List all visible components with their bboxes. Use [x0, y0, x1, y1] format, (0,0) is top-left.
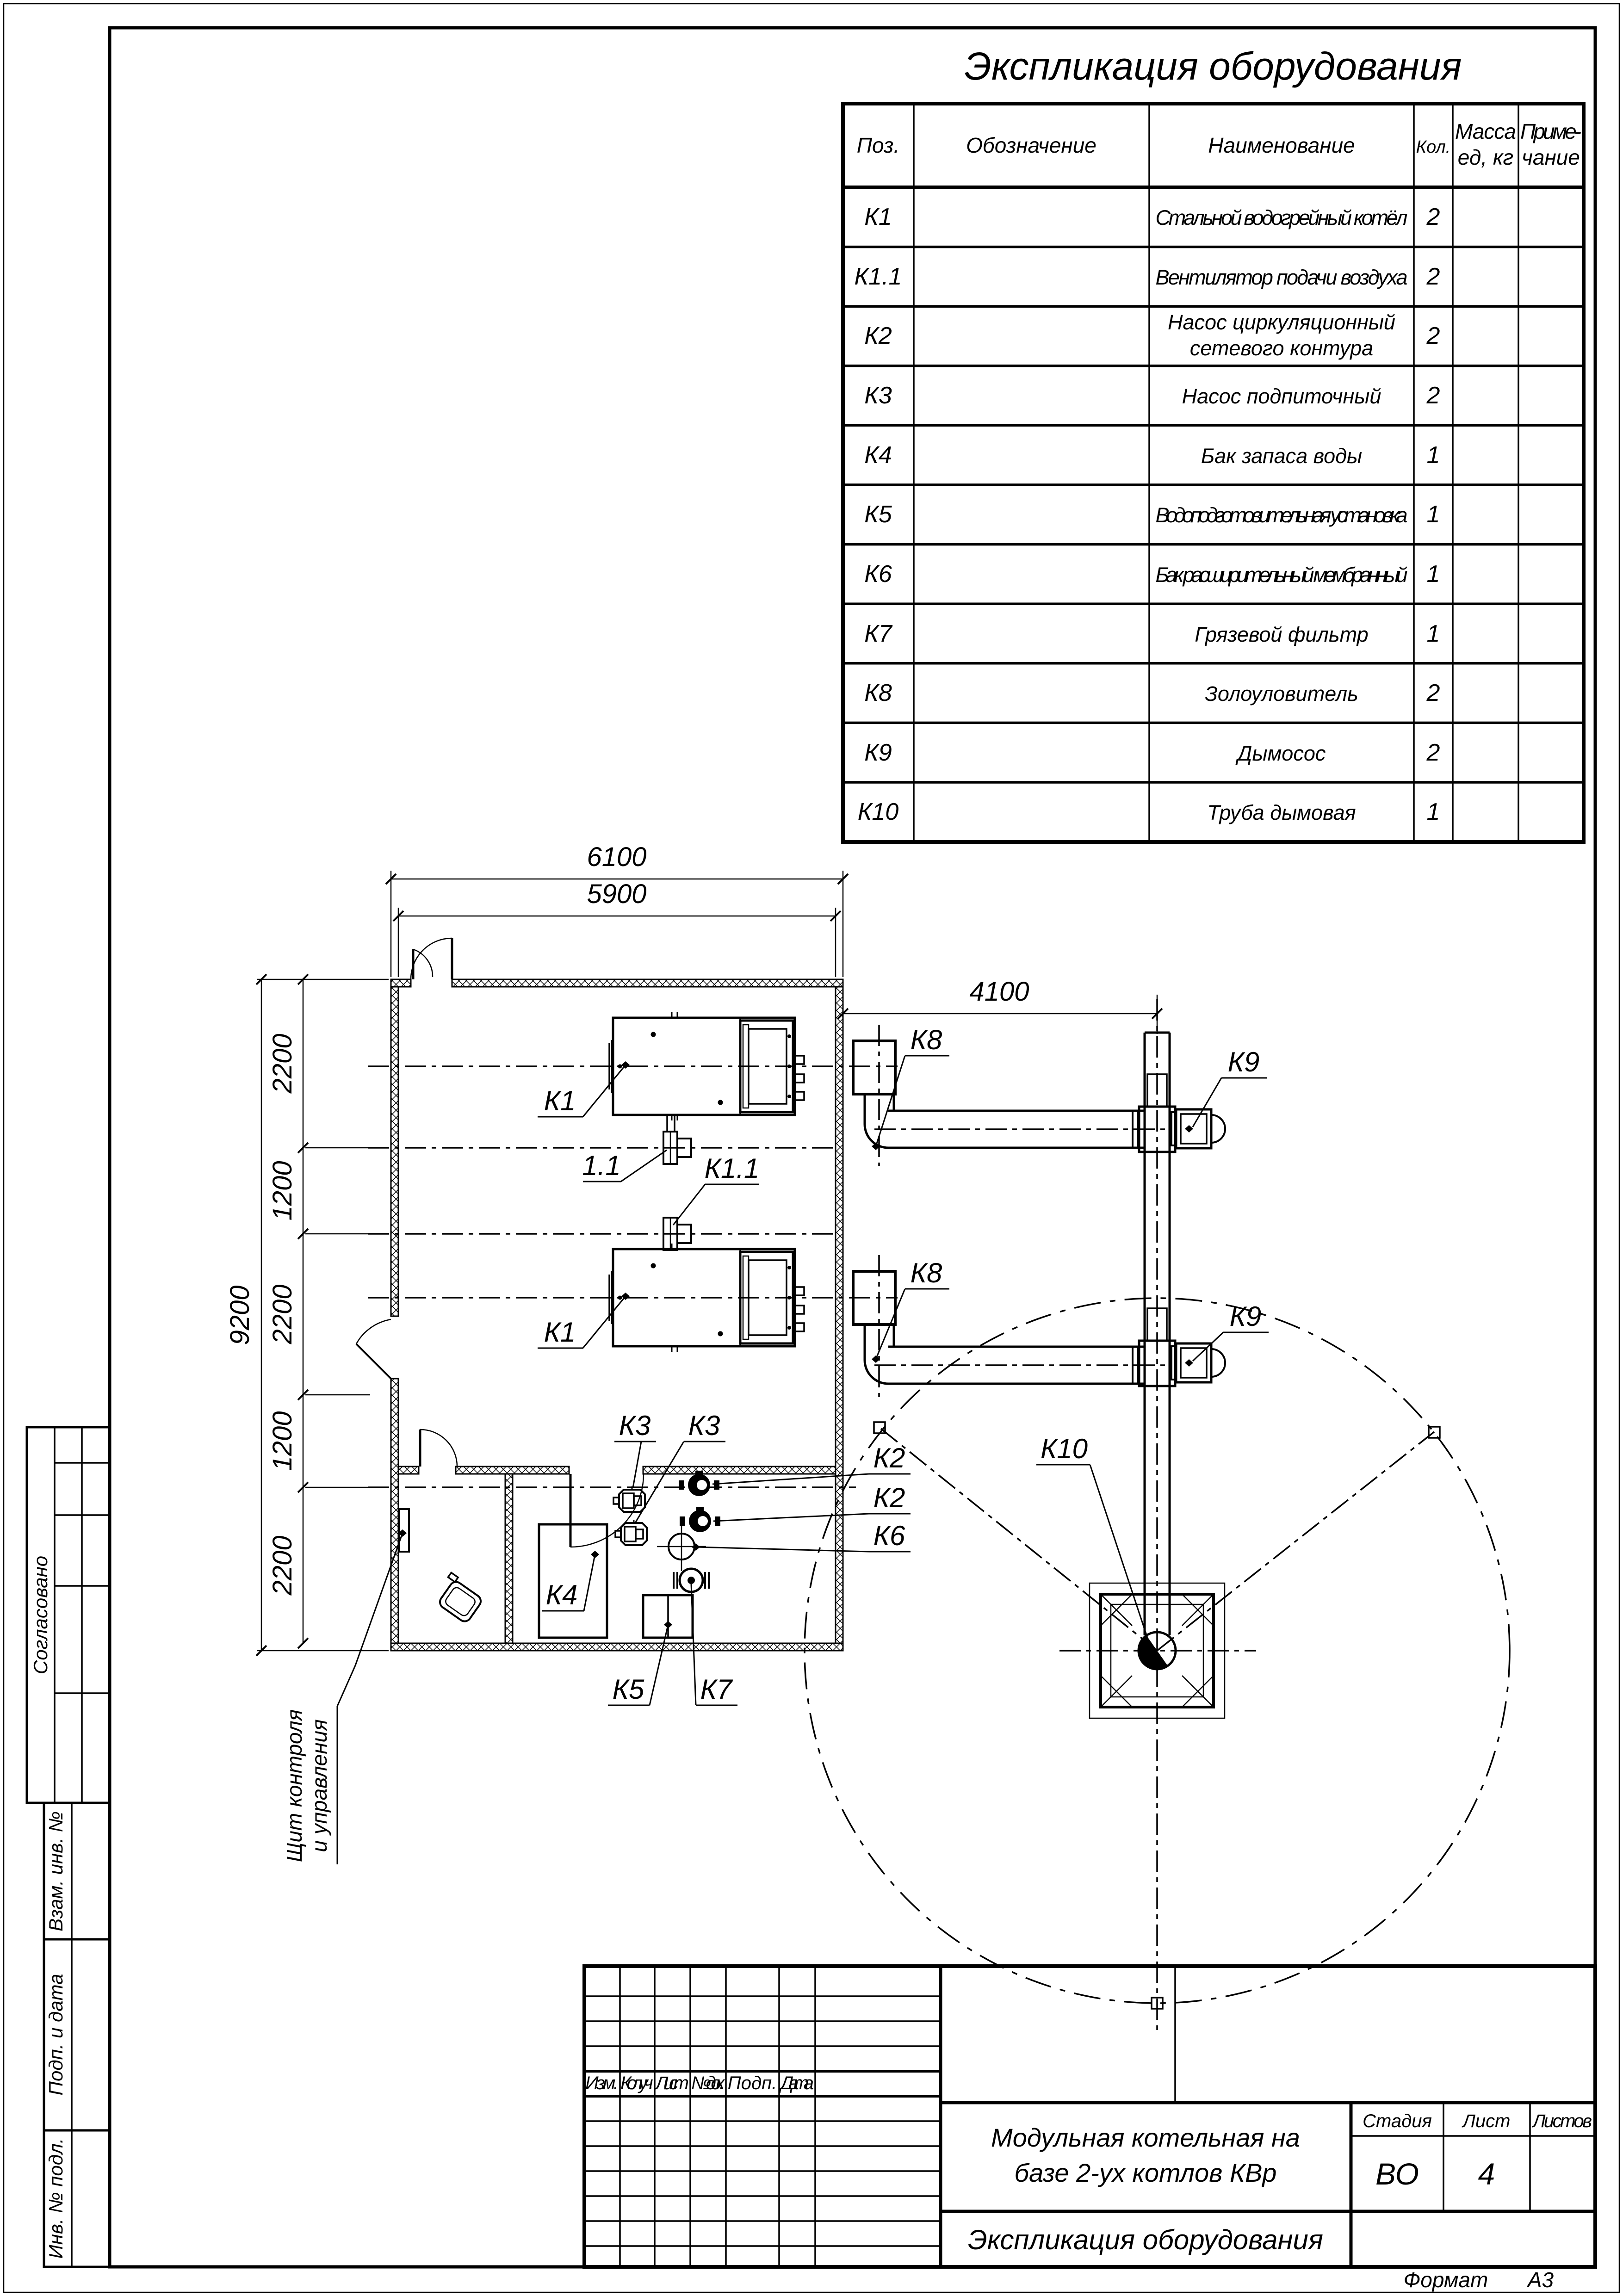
rev-data: Дата	[779, 2073, 814, 2093]
svg-text:К8: К8	[911, 1024, 942, 1055]
building-walls	[391, 979, 843, 1651]
doc-title: Экспликация оборудования	[968, 2224, 1323, 2255]
svg-text:К9: К9	[1230, 1301, 1262, 1332]
dim-seg3: 2200	[267, 1284, 297, 1344]
svg-text:К8: К8	[911, 1257, 942, 1288]
rev-ndok: №док.	[691, 2073, 725, 2093]
stamp-inv-label: Инв. № подл.	[45, 2138, 67, 2259]
stamp-vzam-label: Взам. инв. №	[45, 1811, 67, 1931]
label-k1-bottom: К1	[538, 1293, 630, 1348]
svg-text:К9: К9	[1228, 1046, 1260, 1077]
row-name: Бак запаса воды	[1201, 444, 1362, 468]
table-title: Экспликация оборудования	[965, 44, 1462, 88]
label-k3-a: К3	[614, 1410, 656, 1488]
rev-izm: Изм.	[585, 2073, 619, 2093]
row-name: Вентилятор подачи воздуха	[1156, 266, 1408, 289]
col-header-pos: Поз.	[857, 133, 900, 157]
row-name: Золоуловитель	[1205, 682, 1358, 706]
table-row: К4 Бак запаса воды 1	[864, 442, 1440, 469]
floor-plan: 6100 5900 4100 9200	[225, 842, 1510, 2031]
row-name: Грязевой фильтр	[1195, 623, 1368, 646]
label-k9-bottom: К9	[1193, 1301, 1269, 1361]
row-pos: К6	[864, 561, 892, 588]
svg-text:К7: К7	[700, 1674, 733, 1705]
drawing-sheet: Согласовано Взам. инв. № Подп. и дата Ин…	[0, 0, 1623, 2296]
sheets-label: Листов	[1531, 2111, 1592, 2131]
svg-text:1.1: 1.1	[582, 1150, 620, 1181]
ash-catcher-k8-top	[853, 1041, 895, 1094]
row-qty: 2	[1426, 739, 1440, 766]
rev-list: Лист	[654, 2073, 689, 2093]
row-pos: К5	[864, 501, 892, 528]
label-k10: К10	[1036, 1433, 1148, 1640]
row-pos: К7	[864, 620, 893, 647]
table-row: К8 Золоуловитель 2	[864, 680, 1440, 706]
title-block: Изм. Кол.уч. Лист №док. Подп. Дата Модул…	[584, 1966, 1595, 2292]
entrance-door	[411, 938, 452, 979]
fan-1-1	[663, 1115, 691, 1164]
stamp-vzam: Взам. инв. №	[44, 1803, 110, 1939]
sheet-frame	[4, 4, 1619, 2292]
svg-text:К1: К1	[544, 1317, 576, 1348]
row-qty: 1	[1427, 501, 1440, 528]
sheet-value: 4	[1478, 2157, 1495, 2191]
col-header-designation: Обозначение	[966, 133, 1096, 157]
col-header-qty: Кол.	[1416, 137, 1451, 157]
row-name: Насос подпиточный	[1182, 384, 1381, 408]
label-control-panel: Щит контроля и управления	[282, 1529, 407, 1864]
pump-k2-b	[680, 1507, 720, 1532]
plan-labels: К1 К1 1.1 К1.1	[282, 1024, 1269, 1864]
dim-width-inner: 5900	[587, 879, 646, 909]
svg-text:К1: К1	[544, 1085, 576, 1116]
label-k9-top: К9	[1193, 1046, 1267, 1127]
row-pos: К10	[858, 798, 899, 825]
dim-width-outer: 6100	[587, 842, 646, 872]
equipment-table: Экспликация оборудования Поз. Обозначени…	[843, 44, 1584, 842]
pump-k3-b	[615, 1520, 647, 1545]
svg-text:К6: К6	[873, 1520, 905, 1551]
row-qty: 1	[1427, 561, 1440, 588]
row-qty: 2	[1426, 263, 1440, 290]
label-fan-1-1: 1.1	[582, 1150, 667, 1182]
row-name: Насос циркуляционный	[1168, 310, 1395, 334]
stamp-inv: Инв. № подл.	[44, 2130, 110, 2267]
format-value: А3	[1526, 2268, 1554, 2292]
side-stamps: Согласовано Взам. инв. № Подп. и дата Ин…	[27, 1427, 110, 2267]
row-pos: К9	[864, 739, 892, 766]
table-row: К1 Стальной водогрейный котёл 2	[864, 204, 1440, 230]
row-qty: 2	[1426, 382, 1440, 409]
dim-flue: 4100	[969, 977, 1029, 1007]
flue-system	[853, 1033, 1225, 1635]
label-k1-top: К1	[538, 1061, 630, 1117]
rev-koluch: Кол.уч.	[620, 2073, 654, 2093]
dim-seg1: 2200	[267, 1034, 297, 1094]
doors	[356, 938, 644, 1547]
dim-height-outer: 9200	[225, 1285, 255, 1345]
row-qty: 1	[1427, 620, 1440, 647]
axes	[368, 999, 1256, 2031]
row-qty: 1	[1427, 798, 1440, 825]
table-row: К3 Насос подпиточный 2	[864, 382, 1440, 409]
svg-text:К3: К3	[688, 1410, 720, 1441]
svg-text:К4: К4	[546, 1579, 578, 1610]
svg-text:К2: К2	[873, 1482, 905, 1513]
row-name: Бак расширительный мембранный	[1156, 563, 1408, 587]
label-k4: К4	[542, 1551, 599, 1611]
table-row: К1.1 Вентилятор подачи воздуха 2	[855, 263, 1440, 290]
dim-seg2: 1200	[267, 1161, 297, 1220]
control-panel	[399, 1509, 409, 1552]
project-name-line1: Модульная котельная на	[991, 2123, 1300, 2152]
stamp-podp-label: Подп. и дата	[45, 1974, 67, 2096]
row-pos: К2	[864, 322, 892, 349]
col-header-note2: чание	[1522, 145, 1580, 169]
svg-text:Щит контроля: Щит контроля	[282, 1709, 306, 1862]
stamp-approved: Согласовано	[27, 1427, 110, 1803]
col-header-name: Наименование	[1208, 133, 1355, 157]
col-header-mass1: Масса	[1455, 119, 1516, 143]
table-header-row: Поз. Обозначение Наименование Кол. Масса…	[857, 119, 1581, 169]
row-pos: К3	[864, 382, 892, 409]
dim-seg5: 2200	[267, 1535, 297, 1596]
svg-text:К10: К10	[1041, 1433, 1088, 1464]
table-row: К7 Грязевой фильтр 1	[864, 620, 1440, 647]
row-qty: 2	[1426, 204, 1440, 230]
row-pos: К1.1	[855, 263, 902, 290]
dim-seg4: 1200	[267, 1411, 297, 1471]
smoke-exhauster-k9-bottom	[1171, 1343, 1225, 1382]
row-name: Стальной водогрейный котёл	[1156, 206, 1408, 229]
svg-text:К3: К3	[619, 1410, 651, 1441]
row-qty: 1	[1427, 442, 1440, 469]
stamp-podp: Подп. и дата	[44, 1939, 110, 2130]
label-k8-top: К8	[872, 1024, 949, 1150]
svg-text:К1.1: К1.1	[705, 1153, 760, 1184]
row-pos: К4	[864, 442, 892, 469]
stage-value: ВО	[1375, 2157, 1419, 2191]
sheet-label: Лист	[1462, 2111, 1511, 2131]
row-name: Труба дымовая	[1207, 801, 1356, 824]
table-row: К5 Водоподготовительная установка 1	[864, 501, 1440, 528]
col-header-mass2: ед, кг	[1458, 145, 1513, 169]
row-pos: К1	[864, 204, 892, 230]
left-wall-door	[356, 1319, 391, 1379]
label-fan-k1-1: К1.1	[673, 1153, 759, 1225]
svg-text:К5: К5	[613, 1674, 644, 1705]
label-k2-a: К2	[712, 1442, 911, 1484]
table-row: К9 Дымосос 2	[864, 739, 1440, 766]
row-name: Водоподготовительная установка	[1156, 503, 1408, 527]
stamp-approved-label: Согласовано	[30, 1556, 51, 1674]
col-header-note1: Приме-	[1520, 119, 1581, 143]
svg-text:К2: К2	[873, 1442, 905, 1473]
label-k6: К6	[692, 1520, 911, 1552]
smoke-exhauster-k9-top	[1171, 1109, 1225, 1148]
project-name-line2: базе 2-ух котлов КВр	[1015, 2158, 1277, 2187]
rev-podp: Подп.	[728, 2073, 777, 2093]
table-row: К6 Бак расширительный мембранный 1	[864, 561, 1440, 588]
vestibule-door	[420, 1430, 457, 1467]
row-name2: сетевого контура	[1190, 336, 1373, 360]
svg-text:и управления: и управления	[307, 1719, 331, 1852]
label-k5: К5	[608, 1621, 672, 1705]
format-label: Формат	[1404, 2268, 1488, 2292]
stage-label: Стадия	[1363, 2111, 1432, 2131]
table-row: К2 Насос циркуляционный сетевого контура…	[864, 310, 1440, 360]
unit-k5	[643, 1595, 693, 1638]
row-name: Дымосос	[1235, 742, 1326, 765]
row-qty: 2	[1426, 680, 1440, 706]
row-pos: К8	[864, 680, 892, 706]
sink	[432, 1572, 485, 1624]
pump-k3-a	[613, 1486, 645, 1512]
row-qty: 2	[1426, 322, 1440, 349]
